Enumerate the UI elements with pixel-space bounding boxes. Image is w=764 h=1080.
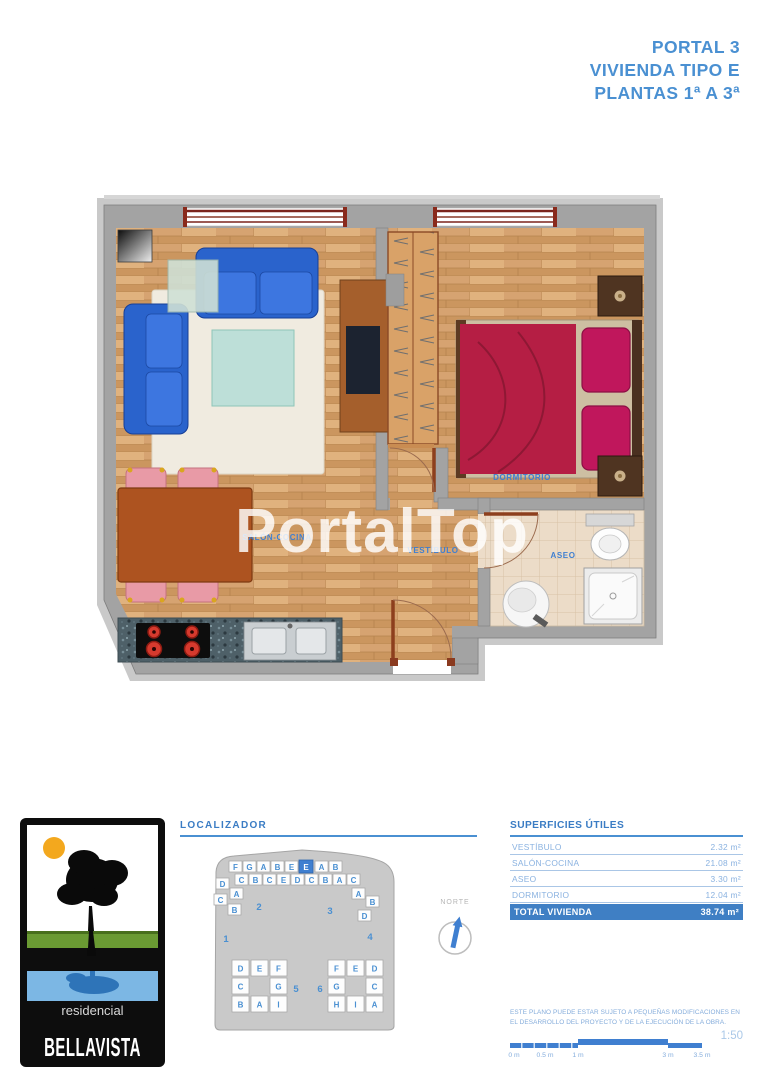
scale-tick: 1 m bbox=[572, 1052, 583, 1059]
block-number: 4 bbox=[367, 932, 373, 943]
map-unit: C bbox=[366, 978, 383, 994]
portaltop-watermark: PortalTop bbox=[0, 496, 764, 567]
entrance-stub bbox=[452, 638, 478, 664]
map-unit: B bbox=[366, 896, 379, 907]
svg-text:I: I bbox=[277, 1001, 279, 1010]
svg-text:F: F bbox=[334, 965, 339, 974]
map-unit: A bbox=[315, 861, 328, 872]
site-map: F G A B E E A B C B C E D C B A C D A C … bbox=[202, 848, 402, 1038]
table-row: VESTÍBULO 2.32 m² bbox=[510, 839, 743, 855]
scale-segment bbox=[578, 1039, 668, 1045]
map-unit: E bbox=[277, 874, 290, 885]
svg-text:C: C bbox=[239, 876, 245, 885]
north-compass: NORTE bbox=[426, 892, 484, 966]
svg-text:A: A bbox=[372, 1001, 378, 1010]
svg-text:F: F bbox=[233, 863, 238, 872]
svg-text:B: B bbox=[238, 1001, 244, 1010]
disclaimer-line: ESTE PLANO PUEDE ESTAR SUJETO A PEQUEÑAS… bbox=[510, 1008, 743, 1018]
map-unit: C bbox=[235, 874, 248, 885]
map-unit: A bbox=[333, 874, 346, 885]
block-number: 2 bbox=[256, 902, 261, 913]
svg-text:D: D bbox=[220, 880, 226, 889]
map-unit: B bbox=[232, 996, 249, 1012]
pillow bbox=[582, 328, 630, 392]
svg-text:G: G bbox=[333, 983, 339, 992]
row-label: VESTÍBULO bbox=[512, 842, 562, 852]
row-value: 21.08 m² bbox=[706, 858, 741, 868]
sofa-left bbox=[124, 304, 188, 434]
svg-text:B: B bbox=[232, 906, 238, 915]
plan-sheet: PORTAL 3 VIVIENDA TIPO E PLANTAS 1ª A 3ª bbox=[0, 0, 764, 1080]
svg-text:H: H bbox=[334, 1001, 340, 1010]
map-unit: B bbox=[271, 861, 284, 872]
table-row: DORMITORIO 12.04 m² bbox=[510, 887, 743, 903]
map-unit: F bbox=[229, 861, 242, 872]
map-unit: A bbox=[366, 996, 383, 1012]
scale-tick: 3.5 m bbox=[694, 1052, 711, 1059]
map-unit: B bbox=[329, 861, 342, 872]
map-unit: D bbox=[216, 878, 229, 889]
svg-text:B: B bbox=[275, 863, 281, 872]
scale-segment bbox=[510, 1043, 578, 1048]
scale-tick: 0.5 m bbox=[537, 1052, 554, 1059]
svg-text:E: E bbox=[353, 965, 359, 974]
map-unit: I bbox=[270, 996, 287, 1012]
map-unit: G bbox=[328, 978, 345, 994]
sheet-header: PORTAL 3 VIVIENDA TIPO E PLANTAS 1ª A 3ª bbox=[590, 36, 740, 105]
nightstand bbox=[598, 456, 642, 496]
svg-text:B: B bbox=[333, 863, 339, 872]
block-number: 1 bbox=[223, 934, 229, 945]
map-unit: B bbox=[228, 904, 241, 915]
wardrobe bbox=[386, 232, 438, 444]
header-plantas: PLANTAS 1ª A 3ª bbox=[590, 82, 740, 105]
bedroom-window bbox=[433, 207, 557, 227]
superficies-table: SUPERFICIES ÚTILES VESTÍBULO 2.32 m² SAL… bbox=[510, 820, 743, 920]
nightstand bbox=[598, 276, 642, 316]
disclaimer: ESTE PLANO PUEDE ESTAR SUJETO A PEQUEÑAS… bbox=[510, 1008, 743, 1027]
map-unit: D bbox=[232, 960, 249, 976]
map-unit: C bbox=[214, 894, 227, 905]
map-unit: I bbox=[347, 996, 364, 1012]
living-room-window bbox=[183, 207, 347, 227]
map-unit: F bbox=[328, 960, 345, 976]
bellavista-logo-art: residencial BELLAVISTA bbox=[20, 818, 165, 1067]
map-unit: E bbox=[251, 960, 268, 976]
table-total-row: TOTAL VIVIENDA 38.74 m² bbox=[510, 904, 743, 920]
side-table bbox=[168, 260, 218, 312]
svg-text:D: D bbox=[362, 912, 368, 921]
map-unit: E bbox=[285, 861, 298, 872]
row-value: 12.04 m² bbox=[706, 890, 741, 900]
map-unit: A bbox=[352, 888, 365, 899]
svg-text:A: A bbox=[319, 863, 325, 872]
svg-text:E: E bbox=[281, 876, 287, 885]
map-unit: D bbox=[291, 874, 304, 885]
map-unit: B bbox=[249, 874, 262, 885]
scale-segment bbox=[668, 1043, 702, 1048]
compass-label: NORTE bbox=[440, 899, 469, 906]
svg-text:B: B bbox=[253, 876, 259, 885]
map-unit: A bbox=[251, 996, 268, 1012]
svg-text:C: C bbox=[351, 876, 357, 885]
svg-text:B: B bbox=[323, 876, 329, 885]
localizador-underline bbox=[180, 835, 477, 837]
north-arrow-icon bbox=[448, 915, 464, 948]
row-label: ASEO bbox=[512, 874, 536, 884]
shower bbox=[584, 568, 642, 624]
bellavista-logo: residencial BELLAVISTA bbox=[20, 818, 165, 1067]
svg-text:B: B bbox=[370, 898, 376, 907]
svg-text:E: E bbox=[257, 965, 263, 974]
block-number: 5 bbox=[293, 984, 299, 995]
svg-text:G: G bbox=[275, 983, 281, 992]
map-unit: C bbox=[347, 874, 360, 885]
tv bbox=[346, 326, 380, 394]
map-unit: C bbox=[232, 978, 249, 994]
washbasin bbox=[503, 581, 549, 628]
table-row: SALÓN-COCINA 21.08 m² bbox=[510, 855, 743, 871]
svg-text:C: C bbox=[309, 876, 315, 885]
map-unit: D bbox=[366, 960, 383, 976]
map-unit: F bbox=[270, 960, 287, 976]
block-number: 6 bbox=[317, 984, 322, 995]
map-unit: G bbox=[243, 861, 256, 872]
svg-text:C: C bbox=[238, 983, 244, 992]
svg-text:D: D bbox=[372, 965, 378, 974]
map-unit: G bbox=[270, 978, 287, 994]
map-unit: D bbox=[358, 910, 371, 921]
logo-residencial: residencial bbox=[61, 1003, 123, 1018]
svg-text:D: D bbox=[295, 876, 301, 885]
row-value: 3.30 m² bbox=[711, 874, 742, 884]
hob bbox=[136, 623, 210, 658]
total-value: 38.74 m² bbox=[701, 907, 739, 917]
svg-text:E: E bbox=[289, 863, 295, 872]
svg-text:F: F bbox=[276, 965, 281, 974]
map-unit: H bbox=[328, 996, 345, 1012]
svg-text:A: A bbox=[356, 890, 362, 899]
svg-text:A: A bbox=[234, 890, 240, 899]
svg-text:G: G bbox=[246, 863, 252, 872]
total-label: TOTAL VIVIENDA bbox=[514, 907, 592, 917]
map-unit: C bbox=[263, 874, 276, 885]
block-number: 3 bbox=[327, 906, 332, 917]
scale-ratio: 1:50 bbox=[721, 1030, 743, 1042]
table-row: ASEO 3.30 m² bbox=[510, 871, 743, 887]
row-label: SALÓN-COCINA bbox=[512, 858, 579, 868]
svg-text:A: A bbox=[337, 876, 343, 885]
row-label: DORMITORIO bbox=[512, 890, 569, 900]
label-dormitorio: DORMITORIO bbox=[493, 473, 551, 482]
sink bbox=[244, 622, 336, 660]
scale-tick: 3 m bbox=[662, 1052, 673, 1059]
superficies-title: SUPERFICIES ÚTILES bbox=[510, 820, 743, 837]
map-unit-highlighted: E bbox=[299, 860, 313, 873]
map-unit: C bbox=[305, 874, 318, 885]
svg-text:A: A bbox=[261, 863, 267, 872]
floor-plan-drawing: SALÓN-COCINA VESTÍBULO ASEO DORMITORIO bbox=[0, 180, 764, 700]
scale-bar: 1:50 0 m 0.5 m 1 m 3 m 3.5 m bbox=[510, 1036, 743, 1064]
localizador-title: LOCALIZADOR bbox=[180, 820, 267, 831]
svg-text:I: I bbox=[354, 1001, 356, 1010]
map-unit: A bbox=[230, 888, 243, 899]
sun-icon bbox=[43, 837, 65, 859]
pillar bbox=[118, 230, 152, 262]
coffee-table bbox=[212, 330, 294, 406]
scale-tick: 0 m bbox=[508, 1052, 519, 1059]
svg-text:C: C bbox=[218, 896, 224, 905]
logo-bellavista: BELLAVISTA bbox=[44, 1033, 141, 1062]
header-portal: PORTAL 3 bbox=[590, 36, 740, 59]
svg-text:A: A bbox=[257, 1001, 263, 1010]
svg-text:E: E bbox=[303, 863, 309, 872]
map-unit: E bbox=[347, 960, 364, 976]
row-value: 2.32 m² bbox=[711, 842, 742, 852]
svg-text:D: D bbox=[238, 965, 244, 974]
tv-cabinet bbox=[340, 280, 388, 432]
floor-plan: SALÓN-COCINA VESTÍBULO ASEO DORMITORIO P… bbox=[0, 180, 764, 700]
map-unit: B bbox=[319, 874, 332, 885]
map-unit: A bbox=[257, 861, 270, 872]
svg-text:C: C bbox=[267, 876, 273, 885]
double-bed bbox=[456, 320, 642, 478]
header-vivienda: VIVIENDA TIPO E bbox=[590, 59, 740, 82]
svg-text:C: C bbox=[372, 983, 378, 992]
disclaimer-line: EL DESARROLLO DEL PROYECTO Y DE LA EJECU… bbox=[510, 1018, 743, 1028]
kitchen bbox=[118, 618, 342, 662]
